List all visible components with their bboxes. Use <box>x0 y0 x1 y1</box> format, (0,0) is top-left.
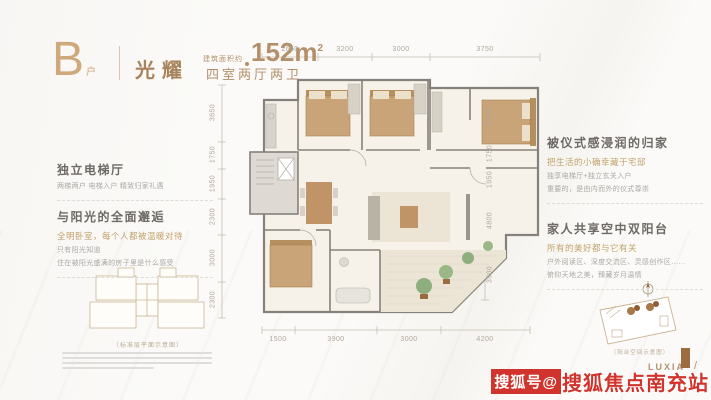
floorplan-body <box>250 80 538 312</box>
area-sup: 2 <box>318 43 324 54</box>
dimension-label: 2300 <box>210 285 217 315</box>
room-layout: 四室两厅两卫 <box>206 64 302 83</box>
feature-line: 独享电梯厅+独立玄关入户 <box>547 171 705 181</box>
unit-letter: B户 <box>52 32 97 87</box>
dimension-label: 1950 <box>210 169 217 199</box>
divider <box>547 289 703 290</box>
watermark-name: 搜狐焦点南充站 <box>562 367 709 396</box>
dimension-label: 3750 <box>470 46 500 53</box>
watermark-badge: 搜狐号@ <box>491 369 561 394</box>
dimension-label: 2650 <box>275 46 305 53</box>
header-divider <box>119 46 120 80</box>
dimension-label: 4800 <box>487 206 494 236</box>
dimension-label: 1950 <box>487 165 494 195</box>
dimension-label: 4200 <box>470 336 500 343</box>
plan-name: 光耀 <box>135 54 189 83</box>
watermark: 搜狐号@ 搜狐焦点南充站 <box>491 367 709 396</box>
fine-print-line <box>62 352 212 354</box>
feature-title: 被仪式感浸润的归家 <box>547 134 705 151</box>
feature-block-sunlight: 与阳光的全面邂逅 全明卧室，每个人都被温暖对待 只有阳光知道 住在被阳光盛满的房… <box>57 208 215 278</box>
dimension-label: 3000 <box>394 336 424 343</box>
divider <box>547 203 703 204</box>
feature-title: 与阳光的全面邂逅 <box>57 208 215 225</box>
dimension-lines-bottom <box>262 326 530 334</box>
feature-line: 两梯两户 电梯入户 精致归家礼遇 <box>57 181 215 191</box>
balcony-caption: （阳台空间示意图） <box>592 348 688 356</box>
unit-suffix: 户 <box>86 67 97 78</box>
feature-block-balcony: 家人共享空中双阳台 所有的美好都与它有关 户外阅读区、深度交流区、灵感创作区……… <box>547 220 705 290</box>
feature-subtitle: 所有的美好都与它有关 <box>547 242 705 254</box>
fine-print-line <box>62 357 212 359</box>
dimension-label: 5400 <box>487 102 494 132</box>
divider <box>57 200 213 201</box>
fine-print-line <box>62 367 154 369</box>
feature-line: 户外阅读区、深度交流区、灵感创作区…… <box>547 257 705 267</box>
feature-title: 独立电梯厅 <box>57 161 215 178</box>
feature-line: 俯仰天地之美，臻藏岁月温情 <box>547 270 705 280</box>
dimension-label: 2300 <box>210 202 217 232</box>
dimension-label: 3900 <box>321 336 351 343</box>
dimension-label: 3200 <box>330 46 360 53</box>
divider <box>57 277 213 278</box>
dimension-label: 1750 <box>210 140 217 170</box>
feature-line: 住在被阳光盛满的房子里是什么感受 <box>57 258 215 268</box>
feature-block-elevator: 独立电梯厅 两梯两户 电梯入户 精致归家礼遇 <box>57 161 215 201</box>
feature-title: 家人共享空中双阳台 <box>547 220 705 237</box>
feature-subtitle: 把生活的小确幸藏于宅邸 <box>547 156 705 168</box>
dimension-label: 1500 <box>263 336 293 343</box>
fine-print <box>62 352 212 372</box>
feature-line: 重要的，是由内而外的仪式尊崇 <box>547 184 705 194</box>
dimension-lines-left <box>218 85 226 318</box>
feature-block-ritual: 被仪式感浸润的归家 把生活的小确幸藏于宅邸 独享电梯厅+独立玄关入户 重要的，是… <box>547 134 705 204</box>
fine-print-line <box>62 362 212 364</box>
balcony-diagram <box>600 297 676 344</box>
feature-line: 只有阳光知道 <box>57 245 215 255</box>
brand-logo-mark-icon <box>681 348 690 368</box>
keyplan-caption: （标准层平面示意图） <box>92 340 204 349</box>
area-prefix: 建筑面积约 <box>203 54 243 64</box>
dimension-label: 3650 <box>210 98 217 128</box>
dimension-label: 3000 <box>210 243 217 273</box>
poster: B户 光耀 建筑面积约 152m 2 四室两厅两卫 独立电梯厅 两梯两户 电梯入… <box>0 0 711 400</box>
dimension-label: 3900 <box>487 260 494 290</box>
feature-subtitle: 全明卧室，每个人都被温暖对待 <box>57 230 215 242</box>
dimension-label: 3000 <box>386 46 416 53</box>
